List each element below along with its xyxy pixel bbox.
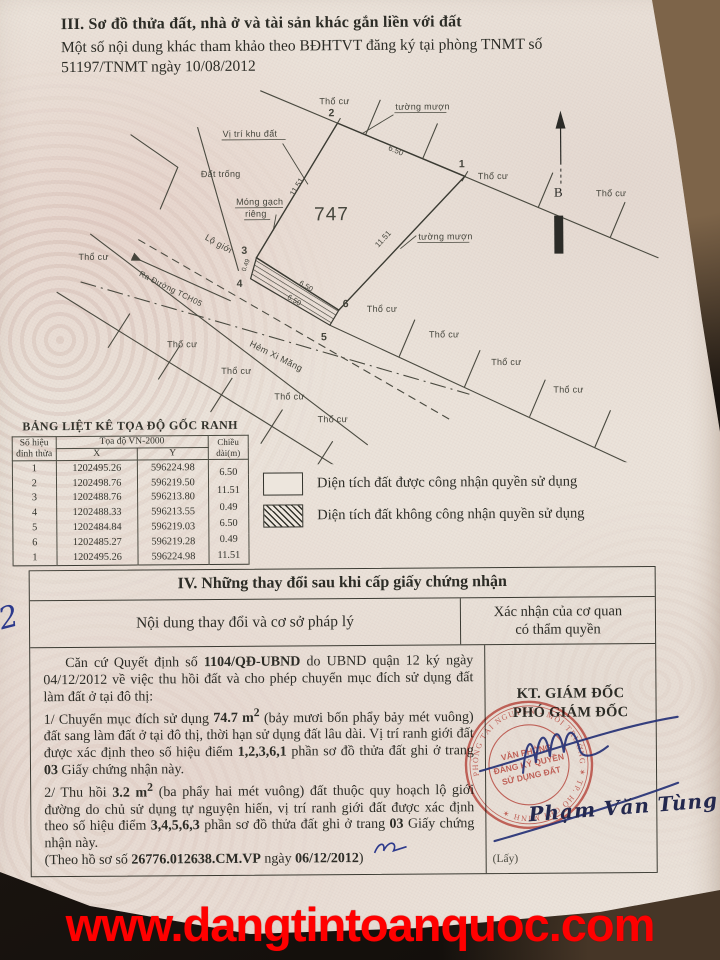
- paragraph-conversion: 1/ Chuyển mục đích sử dụng 74.7 m2 (bảy …: [44, 704, 475, 780]
- file-number: 26776.012638.CM.VP: [131, 852, 261, 868]
- cell-y: 596224.98: [138, 549, 209, 565]
- point-5: 5: [321, 331, 327, 343]
- legend-item-recognized: Diện tích đất được công nhận quyền sử dụ…: [263, 470, 663, 496]
- file-date: 06/12/2012: [295, 851, 359, 866]
- parcel-number: 747: [314, 204, 349, 225]
- length-value: 0.49: [209, 502, 248, 513]
- tho-cu-label: Thổ cư: [429, 329, 459, 339]
- cell-x: 1202495.26: [56, 460, 137, 476]
- watermark-url: www.dangtintoanquoc.com: [0, 897, 720, 952]
- legend-item-not-recognized: Diện tích đất không công nhận quyền sử d…: [263, 502, 663, 528]
- cell-x: 1202484.84: [56, 520, 137, 535]
- legend-recognized-swatch: [263, 472, 303, 495]
- point-1: 1: [459, 158, 465, 170]
- cell-point: 6: [13, 535, 57, 550]
- measure-3-4: 0.49: [241, 258, 252, 273]
- legend-recognized-label: Diện tích đất được công nhận quyền sử dụ…: [317, 473, 577, 492]
- cell-y: 596224.98: [137, 460, 208, 476]
- col-point-line2: đỉnh thửa: [16, 449, 52, 459]
- tho-cu-label: Thổ cư: [319, 96, 349, 106]
- tho-cu-label: Thổ cư: [478, 171, 508, 181]
- measure-1-2: 6.50: [387, 143, 405, 158]
- cell-y: 596213.55: [138, 504, 209, 519]
- col-confirm-line2: có thẩm quyền: [515, 621, 600, 638]
- cell-y: 596213.80: [138, 490, 209, 505]
- signature: [467, 690, 690, 860]
- tho-cu-label: Thổ cư: [167, 339, 197, 349]
- col-coords-header: Tọa độ VN-2000: [56, 436, 208, 449]
- cell-y: 596219.28: [138, 534, 209, 549]
- section-iii-title: III. Sơ đồ thửa đất, nhà ở và tài sản kh…: [61, 12, 621, 34]
- empty-land-label: Đất trống: [201, 169, 241, 179]
- point-4: 4: [237, 278, 243, 290]
- area-recovered: 3.2 m: [112, 785, 147, 800]
- tho-cu-label: Thổ cư: [318, 414, 348, 424]
- cell-point: 2: [12, 476, 56, 491]
- table-row: 1 1202495.26 596224.98 6.50 11.51 0.49 6…: [12, 459, 248, 476]
- cell-point: 1: [13, 550, 57, 566]
- brick-foundation-label: Móng gạch: [236, 197, 283, 207]
- coordinate-table-title: BẢNG LIỆT KÊ TỌA ĐỘ GỐC RANH: [12, 418, 249, 435]
- tho-cu-label: Thổ cư: [596, 188, 626, 198]
- handwritten-initial: [371, 838, 411, 860]
- tho-cu-label: Thổ cư: [274, 391, 304, 401]
- measure-6-1: 11.51: [373, 228, 393, 249]
- to-road-label: Ra Đường TCH05: [138, 269, 204, 308]
- cell-x: 1202495.26: [57, 549, 138, 565]
- legend: Diện tích đất được công nhận quyền sử dụ…: [263, 470, 663, 537]
- section-iii: III. Sơ đồ thửa đất, nhà ở và tài sản kh…: [61, 12, 621, 78]
- change-content-text: Căn cứ Quyết định số 1104/QĐ-UBND do UBN…: [30, 645, 487, 876]
- section-iv-table: IV. Những thay đổi sau khi cấp giấy chứn…: [29, 566, 658, 878]
- legend-unrecognized-swatch: [263, 504, 303, 527]
- cell-point: 5: [13, 520, 57, 535]
- col-content-header: Nội dung thay đổi và cơ sở pháp lý: [30, 598, 461, 647]
- site-location-label: Vị trí khu đất: [223, 129, 278, 139]
- tho-cu-label: Thổ cư: [221, 366, 251, 376]
- tho-cu-label: Thổ cư: [367, 304, 397, 314]
- length-value: 6.50: [209, 467, 248, 478]
- cell-x: 1202488.33: [56, 505, 137, 520]
- length-value: 11.51: [209, 550, 248, 561]
- cell-point: 4: [13, 506, 57, 521]
- col-confirm-header: Xác nhận của cơ quan có thẩm quyền: [461, 597, 655, 644]
- north-arrow-icon: B: [553, 111, 566, 254]
- cell-point: 1: [12, 461, 56, 477]
- borrowed-wall-label: tường mượn: [418, 231, 472, 241]
- cell-point: 3: [13, 491, 57, 506]
- road-boundary-label: Lộ giới: [203, 232, 234, 255]
- point-3: 3: [241, 245, 247, 257]
- cadastral-diagram: B 747 1 2 3 4 5 6 Thổ cư Thổ cư Thổ cư T…: [0, 85, 720, 466]
- area-converted: 74.7 m: [213, 711, 254, 726]
- legend-unrecognized-label: Diện tích đất không công nhận quyền sử d…: [317, 505, 584, 524]
- length-value: 0.49: [209, 534, 248, 545]
- col-x-header: X: [56, 448, 137, 461]
- col-point-line1: Số hiệu: [20, 438, 49, 448]
- land-certificate-photo: III. Sơ đồ thửa đất, nhà ở và tài sản kh…: [0, 0, 720, 960]
- col-point-header: Số hiệu đỉnh thửa: [12, 437, 56, 461]
- length-value: 11.51: [209, 485, 248, 496]
- tho-cu-label: Thổ cư: [491, 357, 521, 367]
- tho-cu-label: Thổ cư: [78, 252, 108, 262]
- col-confirm-line1: Xác nhận của cơ quan: [494, 603, 623, 620]
- authority-confirm-cell: KT. GIÁM ĐỐC PHÓ GIÁM ĐỐC PHÒNG TÀI NGUY…: [485, 644, 657, 873]
- coordinate-table: BẢNG LIỆT KÊ TỌA ĐỘ GỐC RANH Số hiệu đỉn…: [12, 418, 250, 566]
- section-iii-subtitle: Một số nội dung khác tham khảo theo BĐHT…: [61, 34, 591, 78]
- lay-note: (Lấy): [493, 853, 519, 865]
- paragraph-basis: Căn cứ Quyết định số 1104/QĐ-UBND do UBN…: [43, 653, 473, 707]
- point-6: 6: [343, 298, 349, 310]
- hatched-strip-polygon: [250, 257, 338, 326]
- length-value: 6.50: [209, 518, 248, 529]
- tho-cu-label: Thổ cư: [553, 384, 583, 394]
- length-column: 6.50 11.51 0.49 6.50 0.49 11.51: [208, 459, 249, 564]
- north-label: B: [554, 185, 563, 200]
- borrowed-wall-label: tường mượn: [395, 101, 449, 111]
- brick-foundation-label: riêng: [245, 209, 267, 219]
- point-list-2: 3,4,5,6,3: [151, 819, 200, 834]
- col-length-header: Chiều dài(m): [208, 435, 248, 459]
- handwritten-margin-note: 2: [0, 599, 22, 638]
- point-list-1: 1,2,3,6,1: [238, 745, 287, 760]
- cell-x: 1202485.27: [57, 535, 138, 550]
- cell-y: 596219.50: [138, 475, 209, 490]
- decision-number: 1104/QĐ-UBND: [204, 654, 301, 670]
- point-2: 2: [328, 107, 334, 119]
- cell-x: 1202498.76: [56, 475, 137, 490]
- cell-x: 1202488.76: [56, 490, 137, 505]
- cell-y: 596219.03: [138, 519, 209, 534]
- section-iv-title: IV. Những thay đổi sau khi cấp giấy chứn…: [30, 567, 655, 601]
- col-y-header: Y: [137, 448, 208, 460]
- boundary-point-numbers: 1 2 3 4 5 6: [235, 106, 466, 344]
